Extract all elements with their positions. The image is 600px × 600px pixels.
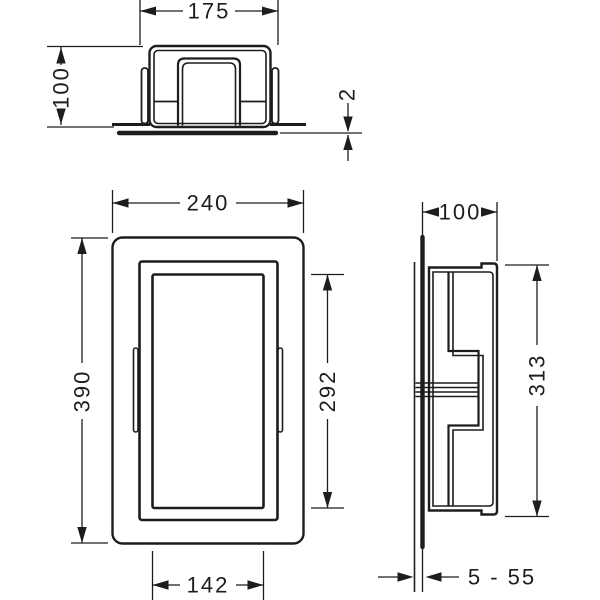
mounting-clip-side (416, 383, 479, 397)
dim-outer-width: 240 (113, 190, 304, 233)
frame-outer-outline (140, 262, 278, 521)
dim-frame-lip: 2 (335, 87, 360, 161)
dim-top-depth-label: 100 (49, 66, 74, 109)
dim-outer-height: 390 (70, 238, 109, 543)
dim-side-depth-label: 100 (439, 200, 482, 225)
cavity-outline (178, 59, 240, 126)
dim-cutout-width: 175 (140, 0, 278, 45)
clip-tab-right (278, 348, 283, 432)
dim-opening-width: 142 (153, 551, 264, 600)
niche-body-top-inner-line (154, 51, 266, 124)
dim-body-height: 313 (505, 265, 550, 517)
top-view: 175 100 2 (47, 0, 362, 161)
dim-frame-lip-label: 2 (335, 87, 360, 101)
dim-tile-range: 5 - 55 (378, 565, 536, 590)
dim-outer-height-label: 390 (70, 370, 95, 413)
side-view: 100 313 5 - 55 (378, 200, 550, 593)
clip-tab-left (134, 348, 139, 432)
dim-cutout-width-label: 175 (188, 0, 231, 24)
side-body-outline (429, 264, 497, 515)
dim-opening-height: 292 (311, 275, 344, 509)
dim-outer-width-label: 240 (187, 191, 230, 216)
dim-body-height-label: 313 (525, 354, 550, 397)
dim-tile-range-label: 5 - 55 (468, 565, 536, 590)
front-body-outline (113, 238, 304, 544)
front-view: 240 390 292 (70, 190, 345, 600)
mounting-clip-left (142, 68, 149, 124)
dim-top-depth: 100 (47, 47, 143, 128)
dim-opening-width-label: 142 (187, 573, 230, 598)
side-body-inner-line (433, 272, 493, 506)
cavity-inner-line (183, 63, 236, 126)
mounting-clip-right (272, 68, 279, 124)
dim-opening-height-label: 292 (315, 370, 340, 413)
frame-opening-outline (153, 275, 264, 509)
technical-drawing: 175 100 2 (0, 0, 600, 600)
dim-side-depth: 100 (423, 200, 497, 262)
